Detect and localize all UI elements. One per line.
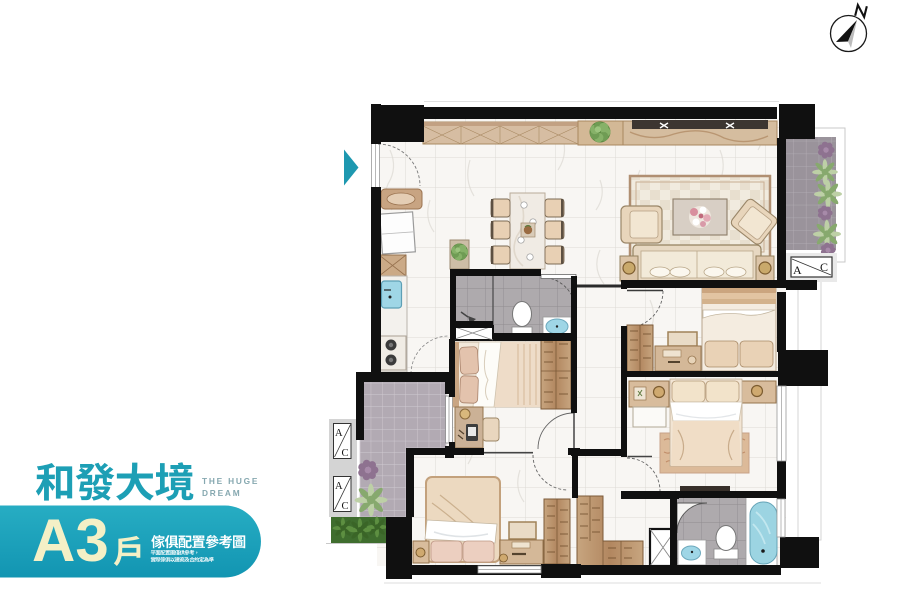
svg-text:A: A (335, 481, 343, 492)
svg-text:THE HUGE: THE HUGE (202, 476, 259, 486)
svg-text:A3: A3 (32, 507, 109, 574)
svg-text:C: C (342, 501, 349, 512)
svg-text:A: A (335, 428, 343, 439)
svg-text:C: C (342, 448, 349, 459)
svg-text:DREAM: DREAM (202, 488, 241, 498)
svg-text:C: C (820, 260, 828, 274)
svg-text:A: A (793, 263, 802, 277)
